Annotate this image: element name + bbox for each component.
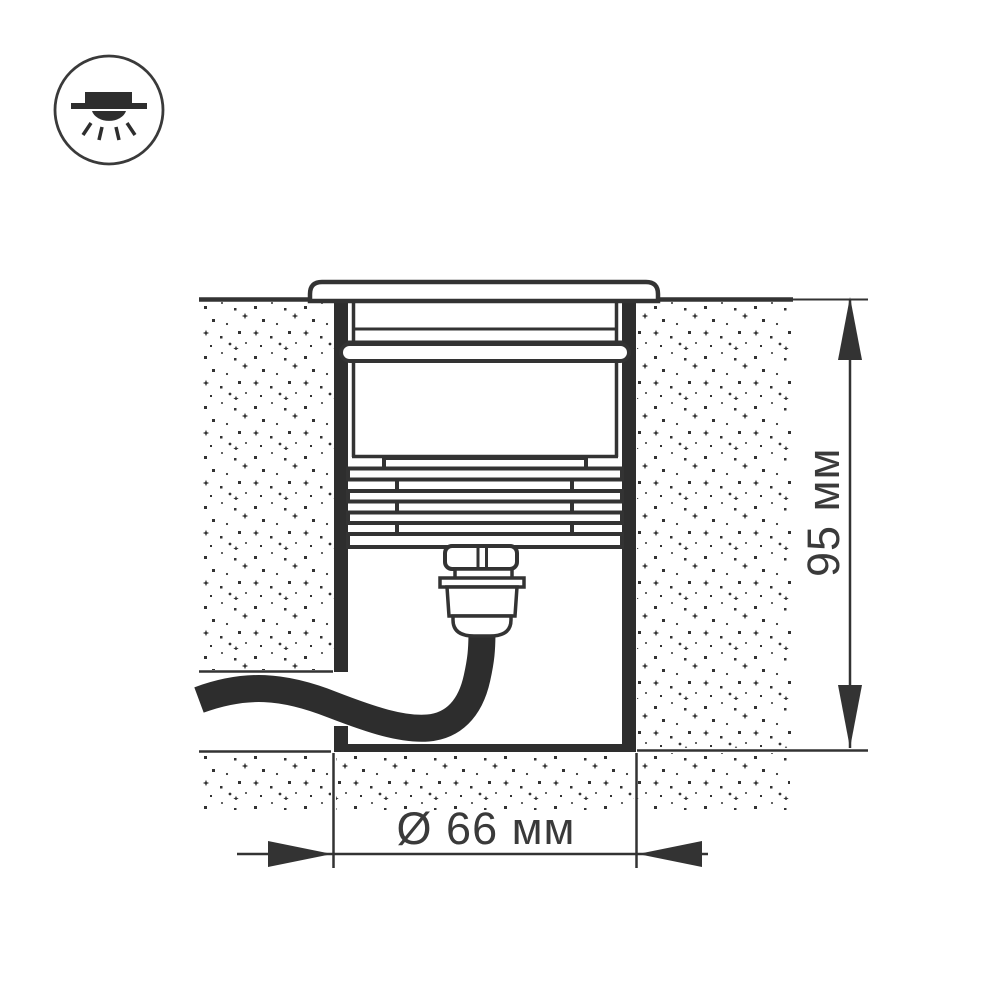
soil-left-upper	[199, 302, 334, 670]
soil-right-upper	[637, 302, 791, 748]
arrow-left-icon	[638, 841, 702, 867]
height-dimension-label: 95 мм	[801, 457, 847, 577]
gland-body	[447, 587, 517, 616]
cable-gland	[440, 546, 524, 636]
arrow-right-icon	[268, 841, 332, 867]
diameter-dimension-label: Ø 66 мм	[336, 806, 636, 852]
sealing-ring	[341, 344, 629, 361]
soil-left-lower	[199, 754, 331, 810]
sleeve-floor	[334, 744, 636, 752]
soil-bottom-middle	[336, 754, 634, 810]
housing	[347, 300, 623, 457]
arrow-down-icon	[838, 685, 862, 748]
luminaire	[310, 282, 658, 636]
gland-dome	[453, 616, 511, 636]
gland-nut	[445, 546, 517, 569]
sleeve-right-wall	[622, 297, 636, 752]
arrow-up-icon	[838, 297, 862, 360]
trim-flange	[310, 282, 658, 301]
product-dimension-diagram: 95 мм Ø 66 мм	[0, 0, 1000, 1000]
soil-right-lower	[637, 753, 790, 810]
heatsink-fins	[348, 458, 622, 547]
